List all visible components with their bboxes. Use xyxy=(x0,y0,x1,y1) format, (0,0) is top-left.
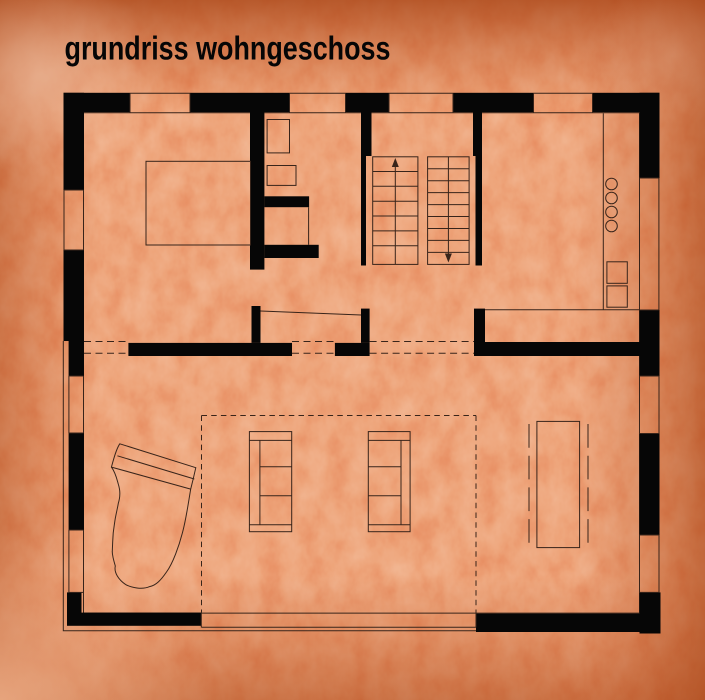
svg-text:grundriss wohngeschoss: grundriss wohngeschoss xyxy=(65,30,391,67)
